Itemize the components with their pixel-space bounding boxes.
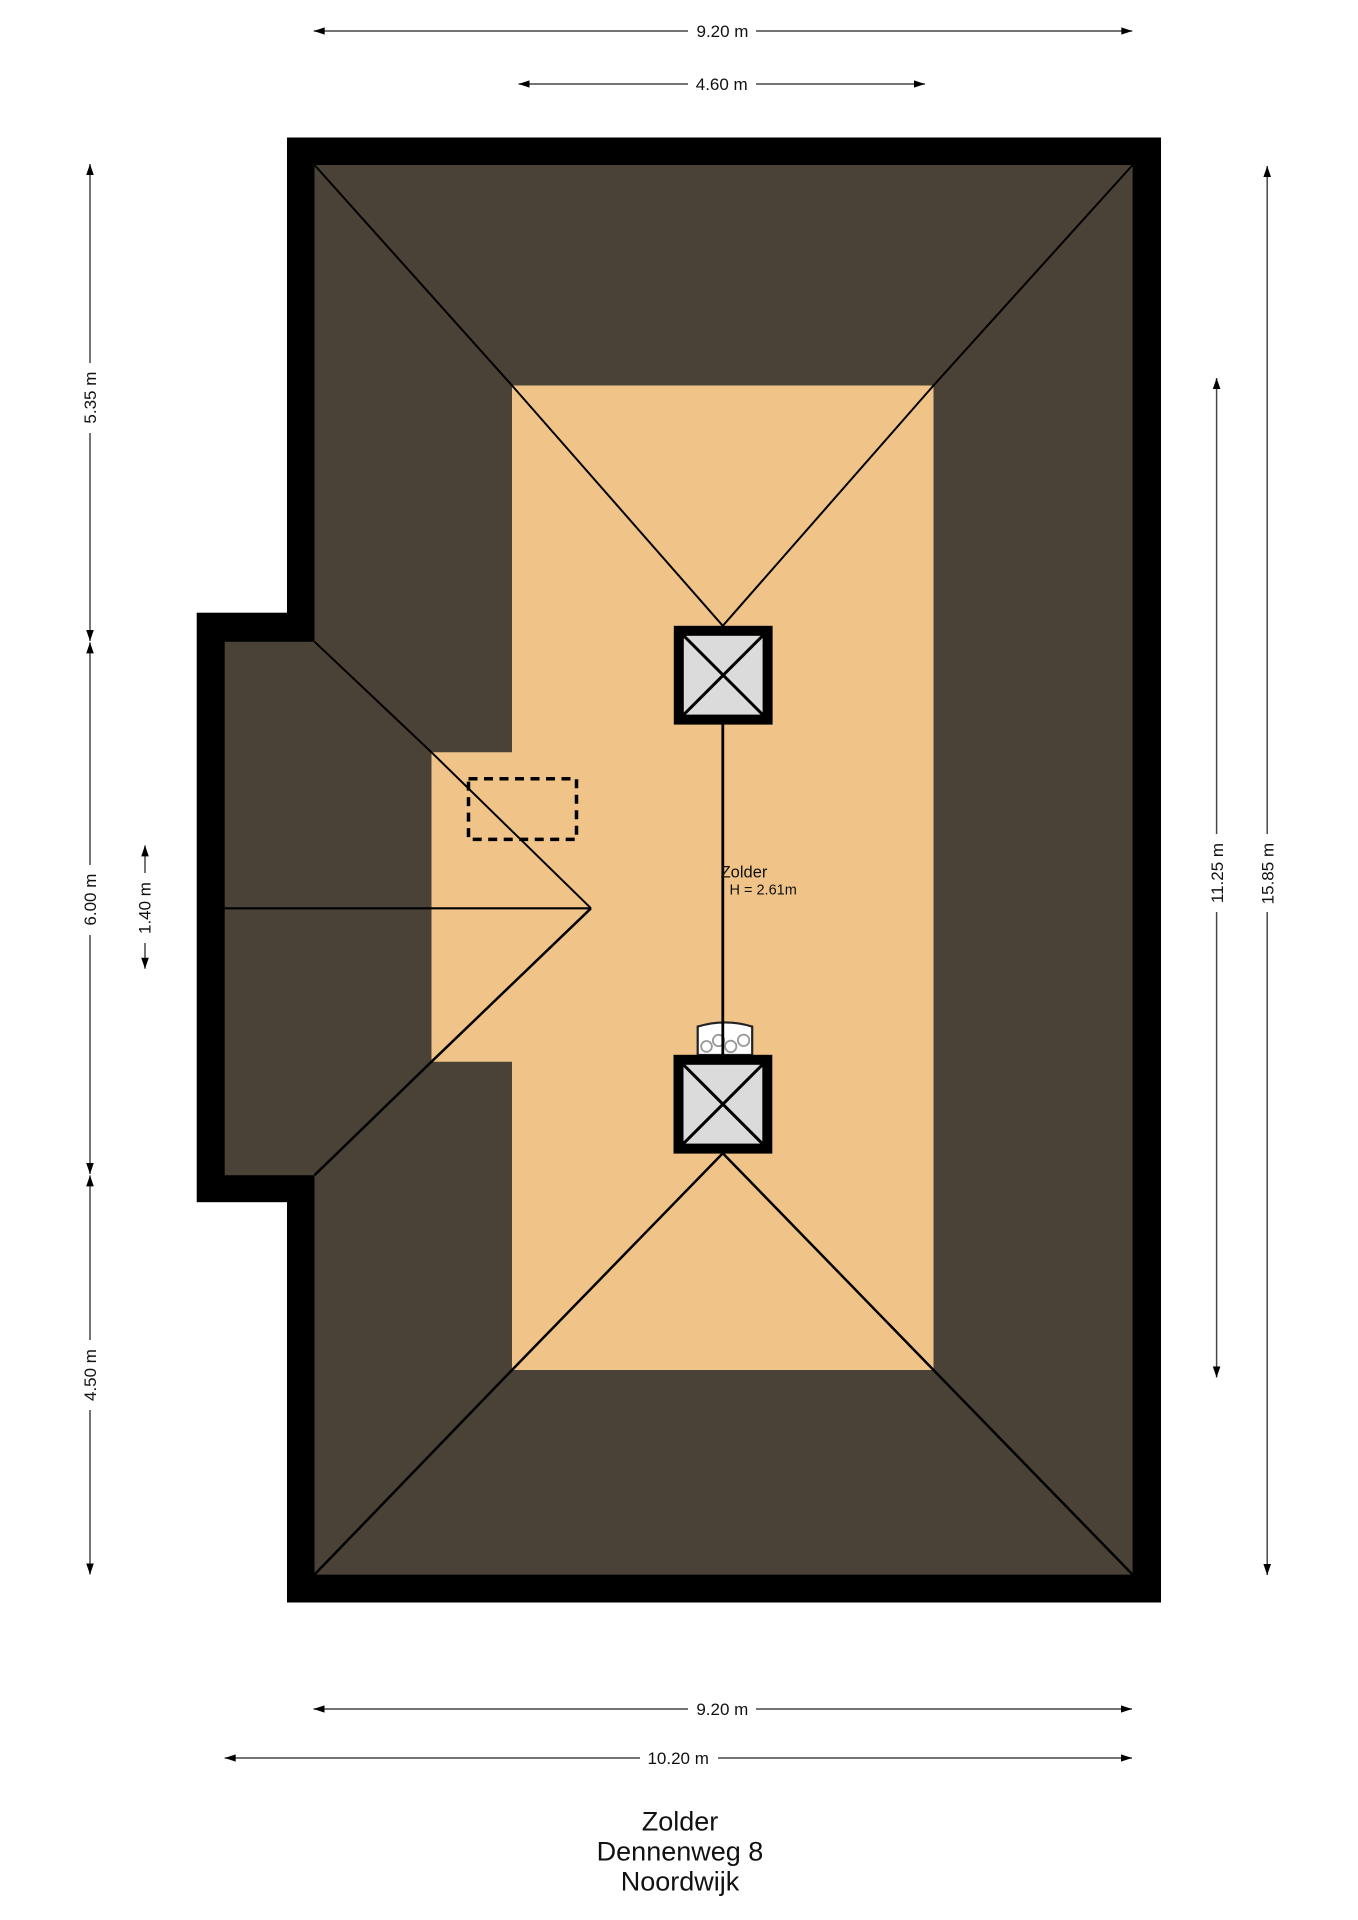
svg-text:H = 2.61m: H = 2.61m (730, 882, 797, 898)
svg-text:1.40 m: 1.40 m (136, 882, 155, 934)
svg-text:11.25 m: 11.25 m (1208, 843, 1227, 903)
svg-text:10.20 m: 10.20 m (647, 1749, 708, 1768)
svg-text:4.60 m: 4.60 m (696, 75, 748, 94)
svg-text:Zolder: Zolder (642, 1807, 719, 1837)
svg-text:Dennenweg 8: Dennenweg 8 (597, 1837, 764, 1867)
svg-text:Noordwijk: Noordwijk (621, 1867, 740, 1897)
svg-text:5.35 m: 5.35 m (81, 372, 100, 424)
svg-text:Zolder: Zolder (721, 864, 768, 882)
svg-text:15.85 m: 15.85 m (1259, 843, 1278, 904)
svg-text:6.00 m: 6.00 m (81, 874, 100, 926)
svg-text:4.50 m: 4.50 m (81, 1349, 100, 1401)
svg-text:9.20 m: 9.20 m (697, 22, 749, 41)
svg-text:9.20 m: 9.20 m (696, 1700, 748, 1719)
